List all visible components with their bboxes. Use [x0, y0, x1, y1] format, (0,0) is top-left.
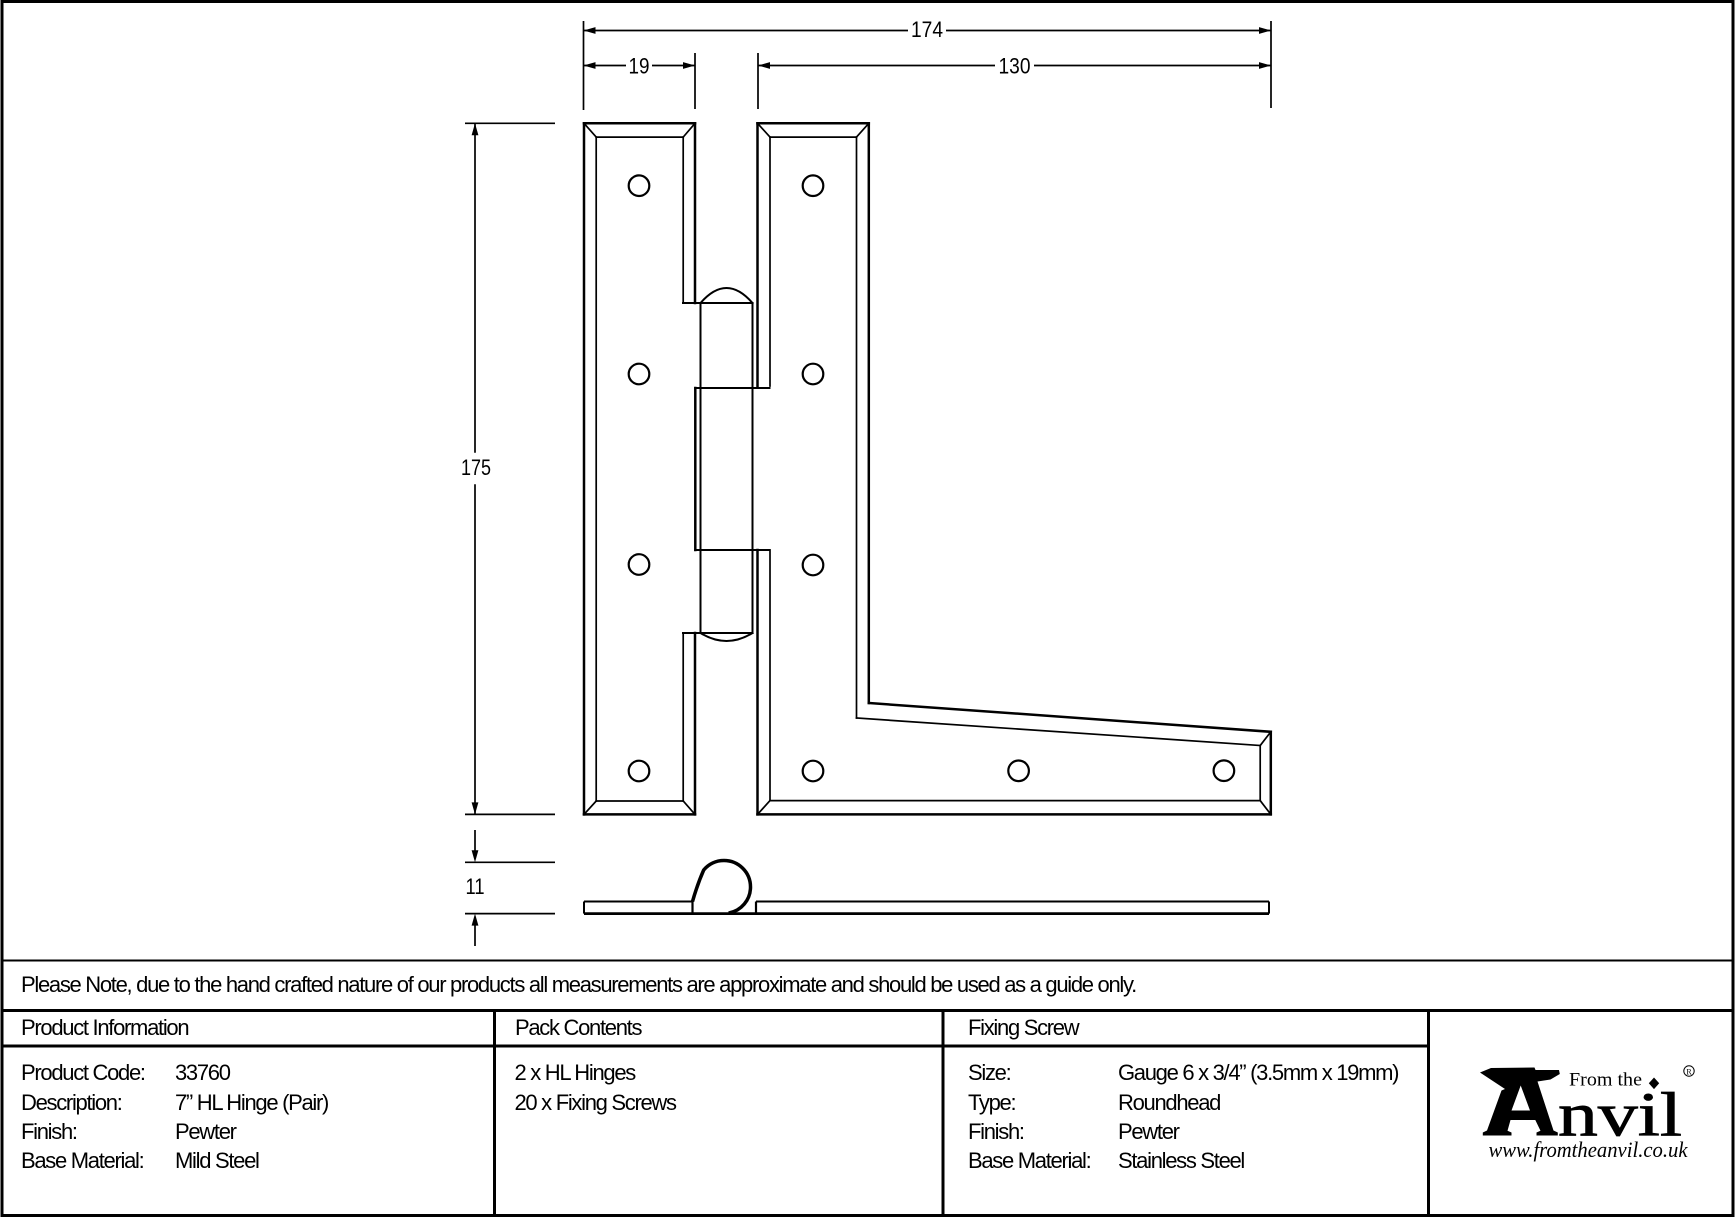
svg-text:19: 19 [629, 54, 650, 79]
svg-text:175: 175 [461, 455, 491, 480]
svg-text:www.fromtheanvil.co.uk: www.fromtheanvil.co.uk [1489, 1137, 1689, 1162]
svg-text:R: R [1686, 1068, 1692, 1077]
svg-text:11: 11 [466, 874, 485, 899]
svg-text:130: 130 [999, 54, 1031, 79]
svg-text:174: 174 [911, 17, 943, 42]
